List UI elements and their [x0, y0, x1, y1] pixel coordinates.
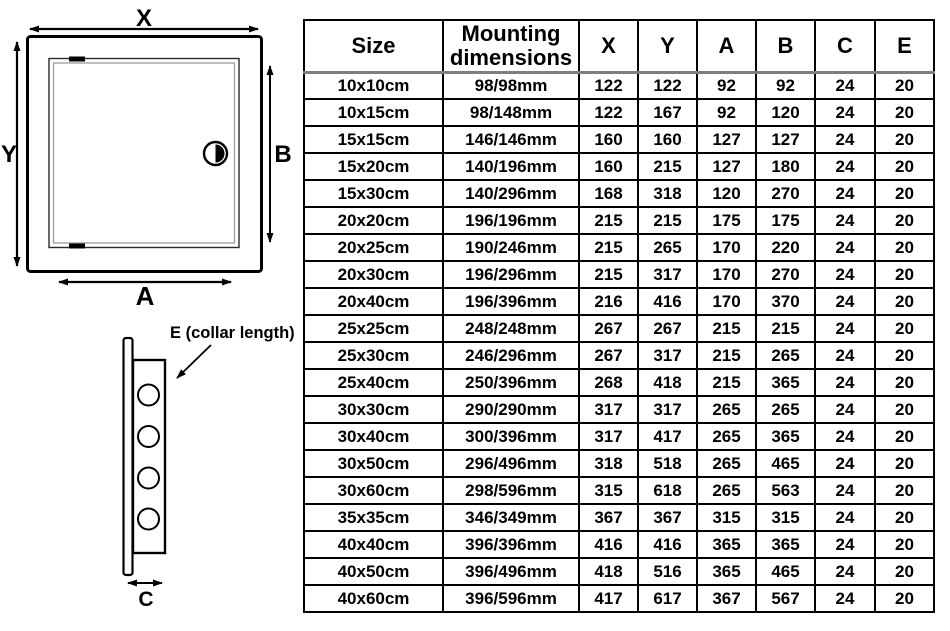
table-cell: 24 — [815, 558, 875, 585]
table-cell: 35x35cm — [304, 504, 443, 531]
table-row: 10x10cm98/98mm12212292922420 — [304, 72, 934, 99]
table-cell: 370 — [756, 288, 815, 315]
table-cell: 215 — [697, 315, 756, 342]
table-cell: 24 — [815, 234, 875, 261]
table-body: 10x10cm98/98mm1221229292242010x15cm98/14… — [304, 72, 934, 612]
table-cell: 20 — [875, 99, 934, 126]
table-cell: 20 — [875, 207, 934, 234]
table-row: 30x50cm296/496mm3185182654652420 — [304, 450, 934, 477]
table-cell: 367 — [638, 504, 697, 531]
side-view-diagram: E (collar length) C — [124, 324, 295, 611]
table-cell: 120 — [756, 99, 815, 126]
table-cell: 215 — [579, 234, 638, 261]
table-cell: 10x10cm — [304, 72, 443, 99]
column-header-size: Size — [304, 20, 443, 72]
table-cell: 265 — [756, 396, 815, 423]
table-cell: 25x40cm — [304, 369, 443, 396]
table-cell: 20 — [875, 234, 934, 261]
table-row: 30x30cm290/290mm3173172652652420 — [304, 396, 934, 423]
table-cell: 180 — [756, 153, 815, 180]
table-cell: 20 — [875, 531, 934, 558]
side-view-flange-plate — [124, 338, 133, 575]
table-cell: 98/148mm — [443, 99, 579, 126]
table-cell: 140/196mm — [443, 153, 579, 180]
table-header-row: Size Mounting dimensions X Y A B C E — [304, 20, 934, 72]
column-header-e: E — [875, 20, 934, 72]
table-cell: 20 — [875, 585, 934, 612]
table-cell: 20x20cm — [304, 207, 443, 234]
table-cell: 175 — [697, 207, 756, 234]
table-cell: 20 — [875, 342, 934, 369]
table-cell: 40x60cm — [304, 585, 443, 612]
table-cell: 270 — [756, 180, 815, 207]
table-cell: 160 — [579, 153, 638, 180]
table-cell: 20 — [875, 396, 934, 423]
table-cell: 24 — [815, 207, 875, 234]
table-cell: 215 — [697, 342, 756, 369]
table-cell: 300/396mm — [443, 423, 579, 450]
dimensions-table-wrap: Size Mounting dimensions X Y A B C E 10x… — [303, 19, 934, 611]
table-cell: 167 — [638, 99, 697, 126]
table-cell: 25x25cm — [304, 315, 443, 342]
table-cell: 215 — [756, 315, 815, 342]
table-cell: 416 — [638, 288, 697, 315]
table-cell: 367 — [697, 585, 756, 612]
table-cell: 215 — [638, 153, 697, 180]
table-cell: 92 — [697, 99, 756, 126]
table-cell: 317 — [638, 261, 697, 288]
table-cell: 160 — [579, 126, 638, 153]
table-cell: 24 — [815, 126, 875, 153]
table-cell: 416 — [579, 531, 638, 558]
table-cell: 265 — [697, 423, 756, 450]
table-cell: 170 — [697, 288, 756, 315]
table-cell: 267 — [638, 315, 697, 342]
table-cell: 20 — [875, 126, 934, 153]
table-row: 20x25cm190/246mm2152651702202420 — [304, 234, 934, 261]
table-cell: 265 — [697, 450, 756, 477]
table-cell: 20x25cm — [304, 234, 443, 261]
dimension-label-y: Y — [1, 141, 17, 168]
table-row: 10x15cm98/148mm122167921202420 — [304, 99, 934, 126]
table-cell: 315 — [579, 477, 638, 504]
table-cell: 20 — [875, 288, 934, 315]
table-cell: 175 — [756, 207, 815, 234]
table-cell: 365 — [756, 531, 815, 558]
table-cell: 315 — [697, 504, 756, 531]
table-cell: 170 — [697, 234, 756, 261]
table-cell: 196/396mm — [443, 288, 579, 315]
table-cell: 20 — [875, 180, 934, 207]
table-cell: 220 — [756, 234, 815, 261]
table-cell: 20x30cm — [304, 261, 443, 288]
table-cell: 30x60cm — [304, 477, 443, 504]
table-row: 25x30cm246/296mm2673172152652420 — [304, 342, 934, 369]
table-cell: 290/290mm — [443, 396, 579, 423]
table-cell: 270 — [756, 261, 815, 288]
table-cell: 146/146mm — [443, 126, 579, 153]
table-cell: 418 — [638, 369, 697, 396]
collar-hole-3 — [138, 468, 159, 489]
table-cell: 24 — [815, 99, 875, 126]
table-cell: 24 — [815, 180, 875, 207]
table-cell: 518 — [638, 450, 697, 477]
table-cell: 168 — [579, 180, 638, 207]
table-cell: 418 — [579, 558, 638, 585]
table-cell: 367 — [579, 504, 638, 531]
table-cell: 127 — [697, 153, 756, 180]
table-cell: 92 — [697, 72, 756, 99]
table-cell: 196/196mm — [443, 207, 579, 234]
dimension-label-a: A — [136, 281, 155, 311]
table-cell: 160 — [638, 126, 697, 153]
table-cell: 318 — [579, 450, 638, 477]
table-cell: 618 — [638, 477, 697, 504]
table-cell: 365 — [756, 423, 815, 450]
table-cell: 317 — [579, 423, 638, 450]
table-cell: 24 — [815, 396, 875, 423]
table-cell: 24 — [815, 342, 875, 369]
table-cell: 315 — [756, 504, 815, 531]
table-cell: 465 — [756, 450, 815, 477]
table-cell: 317 — [579, 396, 638, 423]
table-cell: 250/396mm — [443, 369, 579, 396]
column-header-a: A — [697, 20, 756, 72]
table-cell: 215 — [579, 207, 638, 234]
table-row: 20x40cm196/396mm2164161703702420 — [304, 288, 934, 315]
dimensions-table: Size Mounting dimensions X Y A B C E 10x… — [303, 19, 935, 613]
table-cell: 318 — [638, 180, 697, 207]
table-cell: 127 — [756, 126, 815, 153]
table-cell: 20x40cm — [304, 288, 443, 315]
table-cell: 417 — [638, 423, 697, 450]
table-row: 25x40cm250/396mm2684182153652420 — [304, 369, 934, 396]
table-cell: 265 — [697, 477, 756, 504]
table-cell: 216 — [579, 288, 638, 315]
front-view-diagram: X Y B A — [1, 5, 292, 311]
table-cell: 24 — [815, 423, 875, 450]
table-cell: 365 — [697, 531, 756, 558]
collar-hole-2 — [138, 426, 159, 447]
table-cell: 122 — [579, 72, 638, 99]
column-header-x: X — [579, 20, 638, 72]
table-cell: 215 — [697, 369, 756, 396]
table-cell: 24 — [815, 315, 875, 342]
table-cell: 265 — [638, 234, 697, 261]
table-cell: 365 — [756, 369, 815, 396]
table-row: 40x60cm396/596mm4176173675672420 — [304, 585, 934, 612]
dimension-label-b: B — [274, 141, 291, 168]
table-cell: 416 — [638, 531, 697, 558]
table-cell: 317 — [638, 342, 697, 369]
table-cell: 346/349mm — [443, 504, 579, 531]
column-header-c: C — [815, 20, 875, 72]
table-cell: 20 — [875, 423, 934, 450]
table-cell: 465 — [756, 558, 815, 585]
access-panel-spec-sheet: X Y B A E (collar length) C — [0, 0, 950, 631]
table-cell: 617 — [638, 585, 697, 612]
dimension-label-x: X — [136, 5, 152, 32]
table-cell: 516 — [638, 558, 697, 585]
table-row: 20x20cm196/196mm2152151751752420 — [304, 207, 934, 234]
table-cell: 190/246mm — [443, 234, 579, 261]
table-cell: 296/496mm — [443, 450, 579, 477]
table-cell: 24 — [815, 504, 875, 531]
table-row: 25x25cm248/248mm2672672152152420 — [304, 315, 934, 342]
table-cell: 268 — [579, 369, 638, 396]
table-row: 30x40cm300/396mm3174172653652420 — [304, 423, 934, 450]
table-row: 30x60cm298/596mm3156182655632420 — [304, 477, 934, 504]
table-cell: 30x40cm — [304, 423, 443, 450]
table-cell: 24 — [815, 288, 875, 315]
table-cell: 317 — [638, 396, 697, 423]
table-cell: 30x50cm — [304, 450, 443, 477]
table-cell: 127 — [697, 126, 756, 153]
table-cell: 567 — [756, 585, 815, 612]
table-cell: 40x50cm — [304, 558, 443, 585]
table-row: 20x30cm196/296mm2153171702702420 — [304, 261, 934, 288]
table-cell: 265 — [756, 342, 815, 369]
table-cell: 298/596mm — [443, 477, 579, 504]
table-cell: 267 — [579, 315, 638, 342]
table-cell: 15x30cm — [304, 180, 443, 207]
table-cell: 20 — [875, 261, 934, 288]
table-cell: 20 — [875, 72, 934, 99]
table-cell: 365 — [697, 558, 756, 585]
table-cell: 120 — [697, 180, 756, 207]
table-cell: 24 — [815, 531, 875, 558]
table-cell: 215 — [638, 207, 697, 234]
table-cell: 24 — [815, 450, 875, 477]
table-cell: 417 — [579, 585, 638, 612]
table-cell: 196/296mm — [443, 261, 579, 288]
collar-length-label: E (collar length) — [170, 324, 295, 342]
table-cell: 140/296mm — [443, 180, 579, 207]
table-cell: 215 — [579, 261, 638, 288]
column-header-b: B — [756, 20, 815, 72]
table-cell: 98/98mm — [443, 72, 579, 99]
table-cell: 20 — [875, 477, 934, 504]
collar-pointer-arrow — [177, 345, 211, 378]
table-cell: 265 — [697, 396, 756, 423]
table-cell: 122 — [638, 72, 697, 99]
table-cell: 24 — [815, 153, 875, 180]
hinge-top-icon — [69, 57, 85, 62]
table-cell: 563 — [756, 477, 815, 504]
table-cell: 20 — [875, 504, 934, 531]
table-row: 15x15cm146/146mm1601601271272420 — [304, 126, 934, 153]
table-cell: 40x40cm — [304, 531, 443, 558]
table-row: 40x40cm396/396mm4164163653652420 — [304, 531, 934, 558]
collar-hole-1 — [138, 385, 159, 406]
table-cell: 24 — [815, 72, 875, 99]
table-cell: 24 — [815, 261, 875, 288]
table-cell: 30x30cm — [304, 396, 443, 423]
table-cell: 396/396mm — [443, 531, 579, 558]
table-cell: 122 — [579, 99, 638, 126]
table-cell: 24 — [815, 585, 875, 612]
table-cell: 92 — [756, 72, 815, 99]
table-cell: 246/296mm — [443, 342, 579, 369]
table-cell: 20 — [875, 450, 934, 477]
collar-hole-4 — [138, 509, 159, 530]
table-cell: 15x20cm — [304, 153, 443, 180]
table-cell: 20 — [875, 153, 934, 180]
hinge-bottom-icon — [69, 244, 85, 249]
table-row: 15x20cm140/196mm1602151271802420 — [304, 153, 934, 180]
table-cell: 396/496mm — [443, 558, 579, 585]
table-cell: 170 — [697, 261, 756, 288]
column-header-mounting-dimensions: Mounting dimensions — [443, 20, 579, 72]
table-cell: 24 — [815, 477, 875, 504]
table-cell: 396/596mm — [443, 585, 579, 612]
table-cell: 15x15cm — [304, 126, 443, 153]
table-cell: 248/248mm — [443, 315, 579, 342]
table-cell: 10x15cm — [304, 99, 443, 126]
table-cell: 20 — [875, 558, 934, 585]
table-cell: 25x30cm — [304, 342, 443, 369]
table-cell: 20 — [875, 315, 934, 342]
table-row: 40x50cm396/496mm4185163654652420 — [304, 558, 934, 585]
table-cell: 24 — [815, 369, 875, 396]
dimension-label-c: C — [138, 588, 153, 611]
table-row: 15x30cm140/296mm1683181202702420 — [304, 180, 934, 207]
table-row: 35x35cm346/349mm3673673153152420 — [304, 504, 934, 531]
table-cell: 267 — [579, 342, 638, 369]
column-header-y: Y — [638, 20, 697, 72]
table-cell: 20 — [875, 369, 934, 396]
